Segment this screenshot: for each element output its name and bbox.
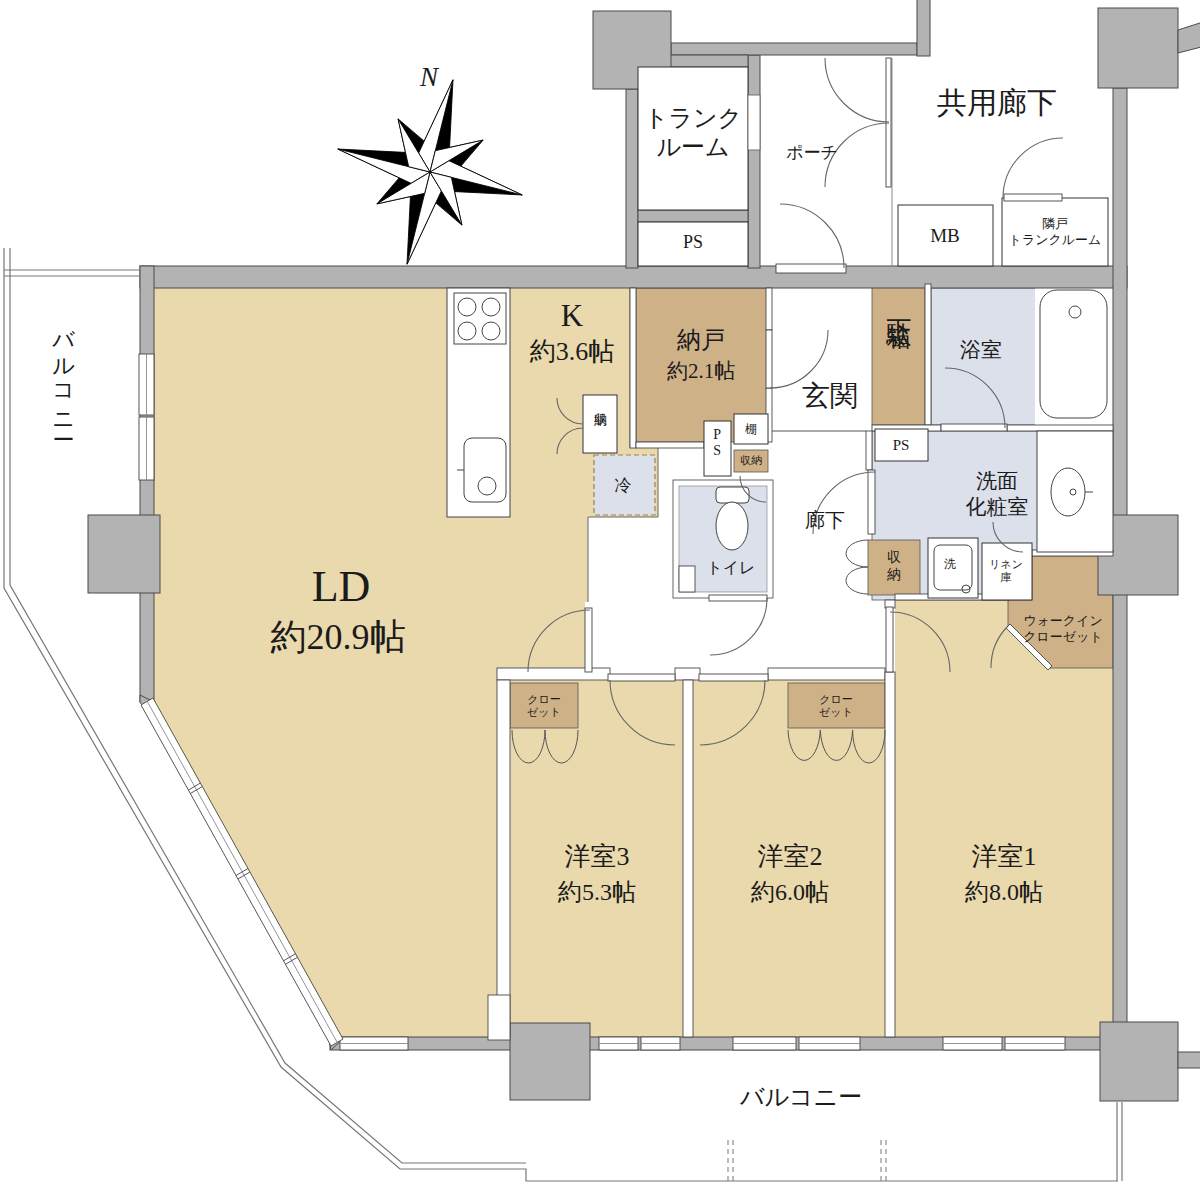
kitchen-name-label: K xyxy=(561,297,583,335)
bedroom1-name-label: 洋室1 xyxy=(972,841,1037,873)
neighbor-trunk-label: 隣戸 トランクルーム xyxy=(1009,216,1102,248)
floor-plan-drawing xyxy=(0,0,1200,1190)
bathtub-icon xyxy=(1040,290,1107,418)
living-dining-name-label: LD xyxy=(312,560,371,614)
refrigerator-label: 冷 xyxy=(615,476,632,497)
living-dining-size-label: 約20.9帖 xyxy=(271,616,406,660)
pillar xyxy=(1098,8,1178,88)
kitchen-size-label: 約3.6帖 xyxy=(530,336,615,368)
bedroom1-size-label: 約8.0帖 xyxy=(965,878,1043,907)
toilet-label: トイレ xyxy=(706,558,755,578)
closet-bedroom2-label: クロー ゼット xyxy=(819,693,853,720)
pillar xyxy=(88,515,160,593)
linen-label: リネン 庫 xyxy=(989,558,1023,585)
pillar xyxy=(510,1023,590,1100)
ps-mid-label: PS xyxy=(708,427,725,459)
kitchen-counter xyxy=(447,288,510,517)
storage-room-name-label: 納戸 xyxy=(677,326,725,355)
compass-north-label: N xyxy=(420,61,438,94)
bathroom-label: 浴室 xyxy=(960,338,1002,364)
common-corridor-label: 共用廊下 xyxy=(937,85,1057,122)
bedroom3-name-label: 洋室3 xyxy=(565,841,630,873)
bedroom3-size-label: 約5.3帖 xyxy=(558,878,636,907)
hallway-label: 廊下 xyxy=(805,508,845,532)
entrance-label: 玄関 xyxy=(802,379,858,413)
washroom-label: 洗面 化粧室 xyxy=(966,469,1029,520)
trunk-room-label: トランク ルーム xyxy=(644,104,742,163)
shoe-cabinet-label: 下駄箱 xyxy=(883,300,914,309)
pillar xyxy=(1100,1022,1178,1101)
bedroom2-size-label: 約6.0帖 xyxy=(751,878,829,907)
meter-box-label: MB xyxy=(930,224,960,247)
ps-top-label: PS xyxy=(683,232,703,254)
washbasin-icon xyxy=(1037,431,1113,552)
washer-label: 洗 xyxy=(944,557,956,572)
balcony-left-label: バルコニー xyxy=(50,315,77,430)
closet-bedroom3-label: クロー ゼット xyxy=(527,693,561,720)
kitchen-storage-label: 収納 xyxy=(592,402,608,404)
storage-hall-label: 収 納 xyxy=(887,549,901,583)
ps-right-label: PS xyxy=(893,436,910,454)
floor-plan: N トランク ルーム PS ポーチ 共用廊下 MB 隣戸 トランクルーム K 約… xyxy=(0,0,1200,1190)
bedroom2-name-label: 洋室2 xyxy=(758,841,823,873)
porch-label: ポーチ xyxy=(786,143,838,164)
walk-in-closet-label: ウォークイン クローゼット xyxy=(1023,613,1103,645)
storage-room-size-label: 約2.1帖 xyxy=(667,359,735,385)
storage-mid-label: 収納 xyxy=(740,454,762,467)
balcony-bottom-label: バルコニー xyxy=(740,1083,862,1112)
toilet-icon xyxy=(716,487,749,550)
shelf-label: 棚 xyxy=(745,422,757,437)
